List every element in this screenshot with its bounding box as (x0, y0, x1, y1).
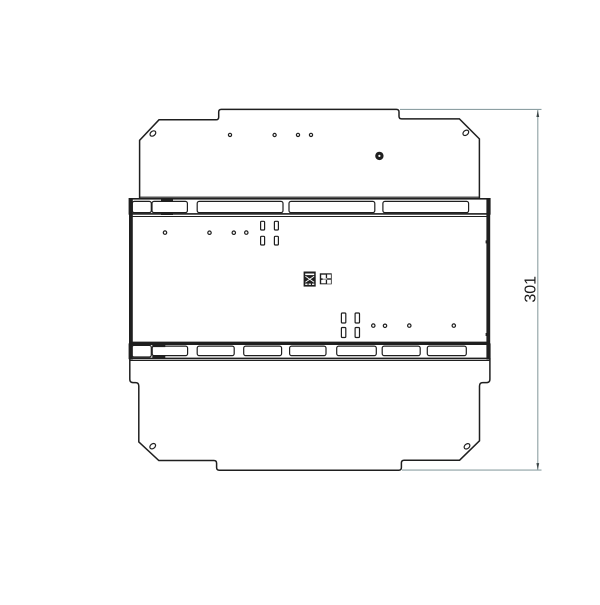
svg-text:301: 301 (523, 276, 540, 303)
